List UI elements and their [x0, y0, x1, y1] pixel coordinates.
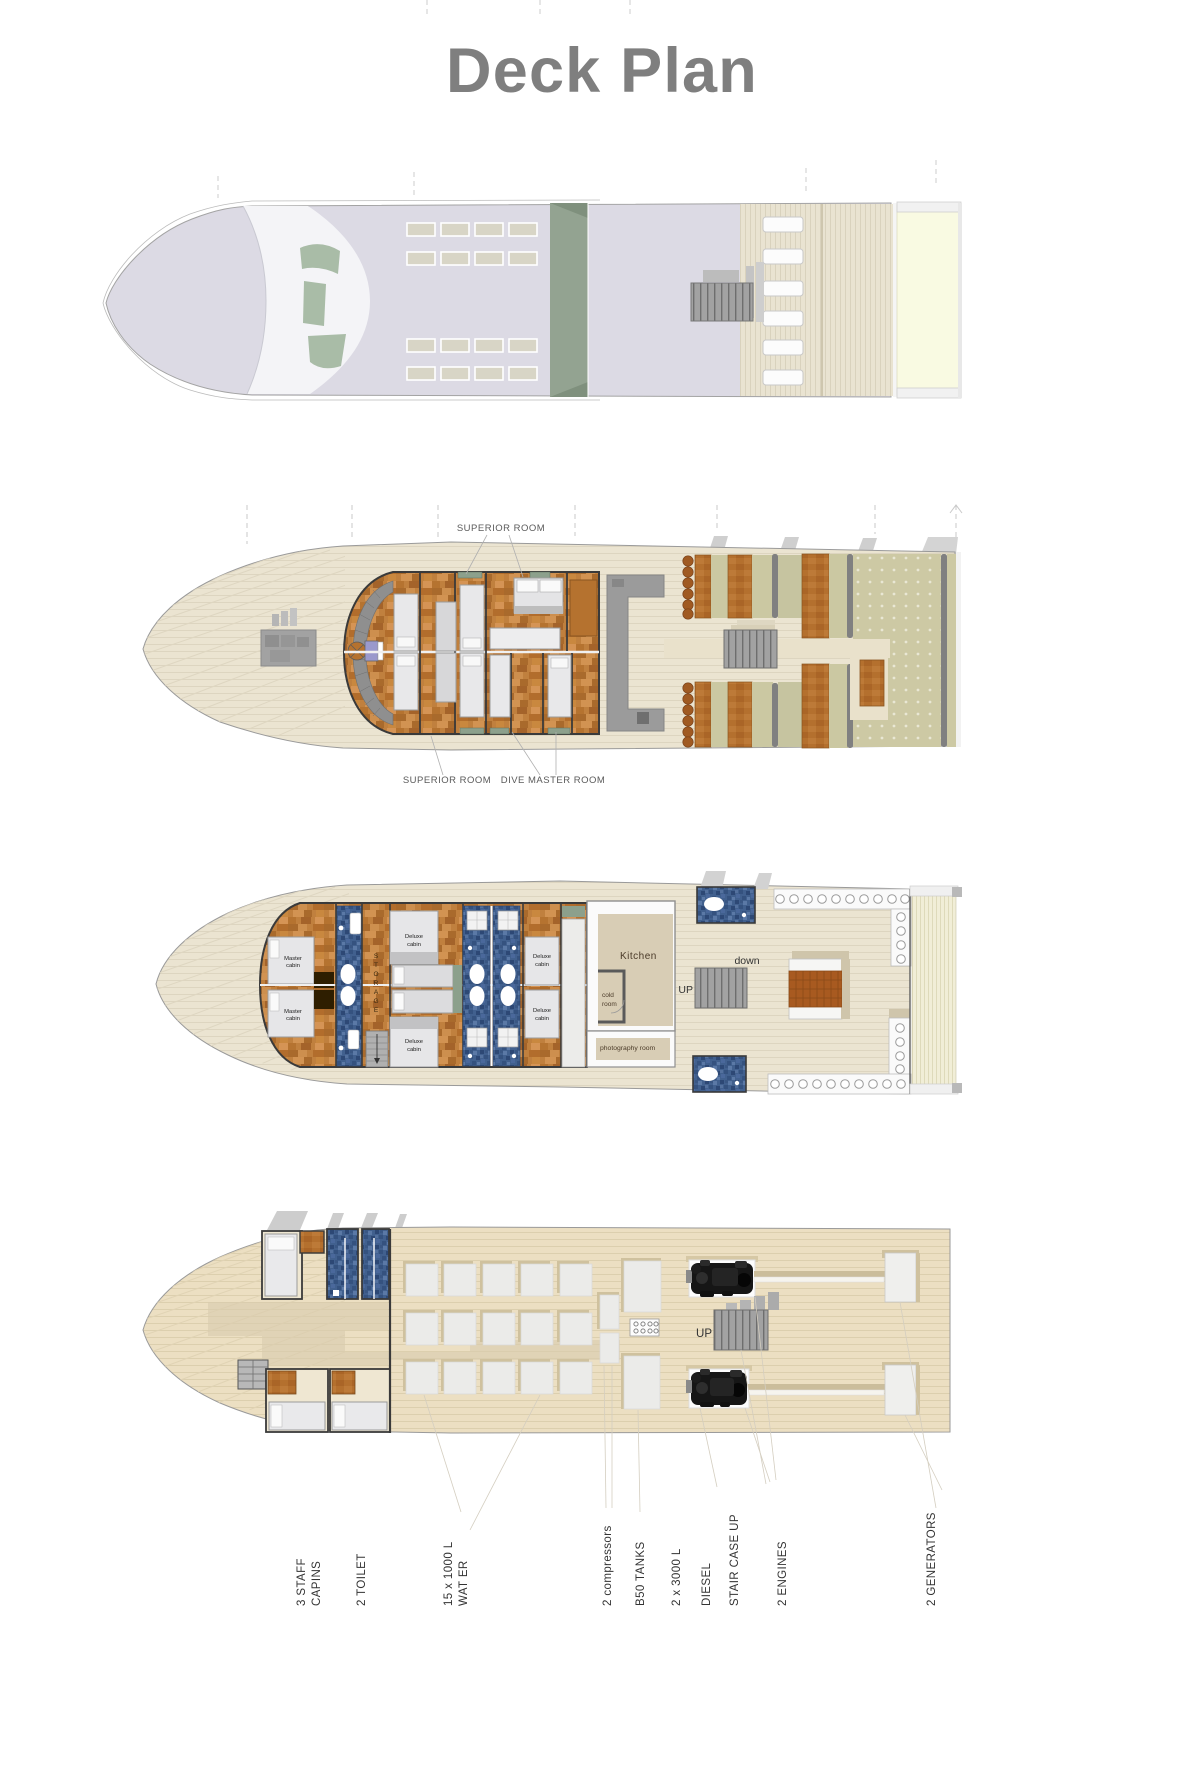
svg-text:Master: Master [284, 956, 302, 962]
svg-text:S: S [374, 953, 379, 960]
svg-text:down: down [734, 955, 759, 967]
svg-text:WAT ER: WAT ER [458, 1560, 470, 1606]
svg-text:Deluxe: Deluxe [533, 954, 551, 960]
svg-text:2 ENGINES: 2 ENGINES [777, 1541, 789, 1606]
svg-text:photography room: photography room [600, 1045, 656, 1052]
svg-text:DIVE MASTER ROOM: DIVE MASTER ROOM [501, 775, 606, 786]
svg-text:E: E [374, 1007, 379, 1014]
svg-text:Deluxe: Deluxe [533, 1008, 551, 1014]
svg-text:Master: Master [284, 1009, 302, 1015]
svg-text:cabin: cabin [407, 1047, 421, 1053]
svg-text:DIESEL: DIESEL [701, 1562, 713, 1606]
svg-text:cabin: cabin [407, 942, 421, 948]
svg-text:UP: UP [678, 984, 693, 996]
svg-text:cabin: cabin [286, 963, 300, 969]
svg-text:cabin: cabin [535, 1016, 549, 1022]
svg-text:15 x 1000 L: 15 x 1000 L [443, 1541, 455, 1606]
svg-text:Deluxe: Deluxe [405, 934, 423, 940]
svg-text:Deluxe: Deluxe [405, 1039, 423, 1045]
svg-text:UP: UP [696, 1328, 712, 1340]
svg-text:A: A [374, 989, 379, 996]
svg-text:STAIR CASE UP: STAIR CASE UP [729, 1514, 741, 1606]
svg-text:O: O [373, 971, 378, 978]
svg-text:R: R [374, 980, 379, 987]
svg-text:2 GENERATORS: 2 GENERATORS [926, 1512, 938, 1606]
svg-text:2 TOILET: 2 TOILET [356, 1553, 368, 1606]
svg-text:B50 TANKS: B50 TANKS [635, 1541, 647, 1606]
svg-text:SUPERIOR ROOM: SUPERIOR ROOM [457, 523, 545, 534]
svg-text:3 STAFF: 3 STAFF [296, 1558, 308, 1606]
svg-text:SUPERIOR ROOM: SUPERIOR ROOM [403, 775, 491, 786]
svg-text:cold: cold [602, 992, 614, 999]
svg-text:Kitchen: Kitchen [620, 951, 657, 962]
svg-text:cabin: cabin [286, 1016, 300, 1022]
svg-text:room: room [602, 1001, 617, 1008]
svg-text:2 x 3000 L: 2 x 3000 L [671, 1548, 683, 1606]
svg-text:CAPINS: CAPINS [311, 1561, 323, 1606]
svg-text:cabin: cabin [535, 962, 549, 968]
svg-text:T: T [374, 962, 378, 969]
svg-text:G: G [373, 998, 378, 1005]
svg-text:Deck Plan: Deck Plan [446, 36, 758, 106]
svg-text:2 compressors: 2 compressors [602, 1525, 614, 1606]
